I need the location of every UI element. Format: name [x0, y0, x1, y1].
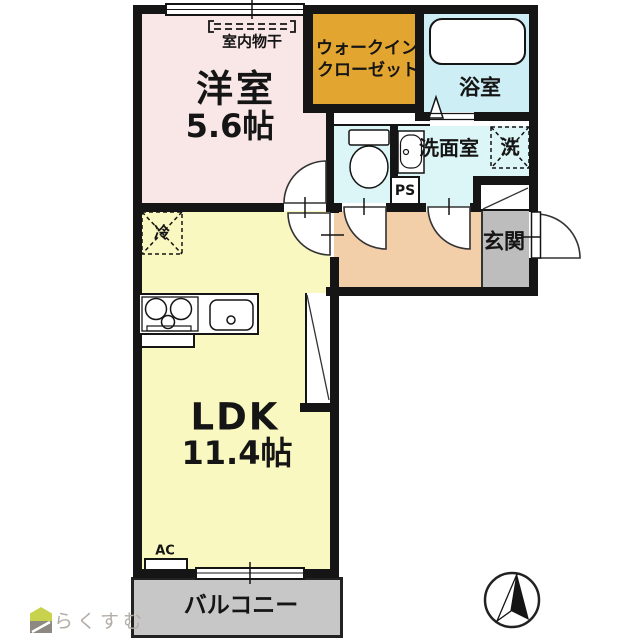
washing-machine-label: 洗 — [500, 139, 519, 158]
floorplan: PS — [0, 0, 640, 640]
bathtub-icon — [430, 19, 525, 64]
door-ldk — [288, 213, 330, 255]
balcony-label: バルコニー — [184, 595, 299, 618]
compass-north-icon — [485, 573, 539, 627]
genkan-label: 玄関 — [483, 232, 525, 253]
ldk-size: 11.4帖 — [182, 437, 293, 469]
door-bath — [429, 97, 443, 118]
refrigerator-label: 冷 — [154, 225, 170, 241]
bath-label: 浴室 — [459, 78, 501, 99]
western-room-label: 洋室 — [196, 71, 276, 108]
fixtures-layer — [0, 0, 640, 640]
indoor-drying-icon — [209, 21, 295, 32]
toilet-bowl-icon — [350, 146, 388, 188]
washroom-label: 洗面室 — [419, 138, 479, 158]
door-toilet — [344, 207, 386, 249]
door-western — [284, 161, 326, 203]
indoor-drying-label: 室内物干 — [222, 35, 282, 50]
toilet-tank-icon — [349, 130, 389, 145]
shoe-closet-diagonal — [483, 188, 528, 209]
western-room-size: 5.6帖 — [186, 110, 275, 142]
ac-label: AC — [155, 545, 175, 558]
ldk-closet-diagonal — [307, 295, 329, 400]
ldk-label: LDK — [191, 399, 280, 436]
door-entrance-leaf — [532, 212, 541, 258]
wic-label-line2: クローゼット — [317, 63, 419, 80]
door-entrance-arc — [536, 214, 580, 258]
logo-house-icon — [30, 607, 52, 633]
wic-label-line1: ウォークイン — [316, 41, 418, 58]
logo-text: らくすむ — [54, 613, 146, 632]
kitchen-sink-icon — [210, 300, 253, 330]
